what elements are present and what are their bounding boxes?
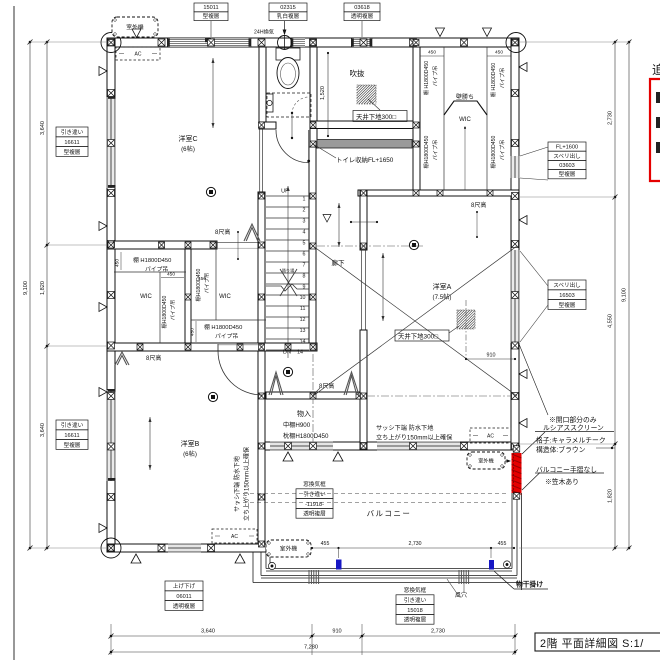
svg-text:7,280: 7,280 bbox=[304, 645, 318, 651]
svg-text:透明複層: 透明複層 bbox=[303, 510, 325, 518]
svg-text:透明複層: 透明複層 bbox=[351, 12, 373, 20]
svg-text:洋室B: 洋室B bbox=[181, 439, 200, 448]
svg-text:(6帖): (6帖) bbox=[181, 145, 195, 153]
svg-text:AC: AC bbox=[487, 434, 494, 440]
svg-text:引き違い: 引き違い bbox=[61, 421, 84, 429]
svg-text:立ち上がり150mm以上確保: 立ち上がり150mm以上確保 bbox=[376, 434, 453, 442]
svg-text:06011: 06011 bbox=[176, 594, 191, 600]
svg-text:450: 450 bbox=[495, 50, 503, 56]
svg-text:2,730: 2,730 bbox=[608, 111, 614, 125]
svg-text:パイプ吊: パイプ吊 bbox=[499, 68, 506, 89]
svg-text:スベリ出し: スベリ出し bbox=[553, 281, 581, 289]
svg-text:5: 5 bbox=[303, 240, 306, 246]
svg-text:3,640: 3,640 bbox=[40, 121, 46, 135]
svg-text:廊下: 廊下 bbox=[332, 258, 346, 267]
svg-text:8尺高: 8尺高 bbox=[471, 201, 486, 209]
svg-text:パイプ吊: パイプ吊 bbox=[204, 273, 211, 294]
svg-text:24H換気: 24H換気 bbox=[254, 28, 274, 36]
svg-text:型複層: 型複層 bbox=[559, 301, 576, 309]
svg-text:450: 450 bbox=[190, 328, 196, 336]
svg-text:中棚H900: 中棚H900 bbox=[283, 421, 311, 429]
svg-text:-11918-: -11918- bbox=[305, 502, 324, 508]
svg-text:(6帖): (6帖) bbox=[183, 450, 197, 458]
svg-text:(7.5帖): (7.5帖) bbox=[433, 293, 452, 301]
svg-text:16503: 16503 bbox=[559, 293, 575, 299]
svg-text:引き違い: 引き違い bbox=[61, 128, 84, 136]
svg-text:パイプ吊: パイプ吊 bbox=[215, 333, 238, 340]
svg-text:910: 910 bbox=[487, 353, 496, 359]
svg-text:15018: 15018 bbox=[407, 608, 423, 614]
svg-text:FL+1600: FL+1600 bbox=[556, 145, 578, 151]
svg-text:3,640: 3,640 bbox=[201, 629, 215, 635]
svg-text:棚H1800D450: 棚H1800D450 bbox=[194, 268, 202, 301]
svg-text:型複層: 型複層 bbox=[64, 148, 81, 156]
svg-text:型複層: 型複層 bbox=[559, 170, 576, 178]
svg-text:型複層: 型複層 bbox=[64, 441, 81, 449]
svg-text:パイプ吊: パイプ吊 bbox=[432, 140, 439, 161]
svg-text:透明複層: 透明複層 bbox=[404, 616, 426, 624]
svg-text:4,550: 4,550 bbox=[608, 314, 614, 328]
svg-text:棚H1800D450: 棚H1800D450 bbox=[160, 295, 168, 328]
svg-text:型複層: 型複層 bbox=[203, 12, 220, 20]
svg-text:8尺高: 8尺高 bbox=[215, 228, 230, 236]
svg-text:455: 455 bbox=[498, 541, 507, 547]
svg-text:透明複層: 透明複層 bbox=[173, 602, 195, 610]
svg-text:サッシ下端 防水下地: サッシ下端 防水下地 bbox=[233, 456, 241, 512]
svg-text:格子:キャラメルチーク: 格子:キャラメルチーク bbox=[536, 436, 606, 445]
svg-text:14: 14 bbox=[300, 339, 306, 345]
svg-text:7: 7 bbox=[303, 262, 306, 268]
svg-text:16611: 16611 bbox=[64, 140, 79, 146]
svg-text:パイプ吊: パイプ吊 bbox=[145, 266, 168, 273]
svg-text:450: 450 bbox=[167, 272, 175, 278]
svg-text:引き違い: 引き違い bbox=[404, 596, 427, 604]
svg-text:※開口部分のみ: ※開口部分のみ bbox=[549, 415, 597, 424]
svg-text:壁勝ち: 壁勝ち bbox=[456, 93, 474, 101]
svg-text:吹抜: 吹抜 bbox=[350, 68, 365, 78]
svg-text:踊り場: 踊り場 bbox=[282, 267, 295, 274]
svg-text:9,100: 9,100 bbox=[23, 281, 29, 295]
svg-text:サッシ下端 防水下地: サッシ下端 防水下地 bbox=[376, 424, 433, 432]
svg-text:パイプ吊: パイプ吊 bbox=[432, 66, 439, 87]
svg-text:棚H1800D450: 棚H1800D450 bbox=[489, 135, 497, 168]
svg-text:1,520: 1,520 bbox=[320, 86, 326, 100]
svg-text:WIC: WIC bbox=[459, 117, 471, 123]
svg-text:室外機: 室外機 bbox=[478, 457, 494, 465]
svg-text:物干掛け: 物干掛け bbox=[516, 580, 543, 589]
svg-text:455: 455 bbox=[321, 541, 330, 547]
svg-text:窓換気框: 窓換気框 bbox=[303, 480, 326, 488]
svg-text:風穴: 風穴 bbox=[455, 591, 467, 599]
svg-text:棚 H1800D450: 棚 H1800D450 bbox=[204, 323, 242, 331]
svg-text:棚 H1800D450: 棚 H1800D450 bbox=[422, 61, 430, 95]
svg-text:天井下地300□: 天井下地300□ bbox=[356, 112, 396, 121]
svg-text:3: 3 bbox=[303, 218, 306, 224]
svg-text:引き違い: 引き違い bbox=[303, 490, 326, 498]
svg-text:8: 8 bbox=[303, 273, 306, 279]
svg-text:14: 14 bbox=[297, 350, 303, 356]
svg-text:450: 450 bbox=[115, 259, 121, 267]
svg-text:8尺高: 8尺高 bbox=[146, 354, 161, 362]
svg-text:WIC: WIC bbox=[140, 294, 152, 300]
svg-text:03603: 03603 bbox=[559, 163, 575, 169]
svg-text:6: 6 bbox=[303, 251, 306, 257]
svg-text:構造体:ブラウン: 構造体:ブラウン bbox=[536, 445, 586, 454]
svg-text:9,100: 9,100 bbox=[622, 288, 628, 302]
svg-text:パイプ吊: パイプ吊 bbox=[499, 140, 506, 161]
svg-text:AC: AC bbox=[135, 52, 142, 58]
svg-text:洋室A: 洋室A bbox=[433, 282, 452, 291]
svg-text:450: 450 bbox=[428, 50, 436, 56]
svg-text:450: 450 bbox=[198, 276, 206, 282]
svg-text:WIC: WIC bbox=[219, 294, 231, 300]
svg-text:2: 2 bbox=[303, 207, 306, 213]
svg-text:バルコニー: バルコニー bbox=[367, 509, 412, 518]
svg-text:洋室C: 洋室C bbox=[178, 134, 197, 143]
svg-text:13: 13 bbox=[300, 328, 306, 334]
svg-text:スベリ出し: スベリ出し bbox=[553, 152, 581, 160]
svg-text:※笠木あり: ※笠木あり bbox=[545, 477, 579, 486]
svg-text:上げ下げ: 上げ下げ bbox=[173, 582, 196, 590]
svg-text:4: 4 bbox=[303, 229, 306, 235]
svg-text:ルシアススクリーン: ルシアススクリーン bbox=[543, 424, 604, 432]
svg-text:12: 12 bbox=[300, 317, 306, 323]
svg-text:乳白複層: 乳白複層 bbox=[277, 12, 299, 20]
svg-text:15011: 15011 bbox=[203, 5, 218, 11]
svg-text:棚H1800D450: 棚H1800D450 bbox=[422, 135, 430, 168]
svg-text:AC: AC bbox=[231, 534, 238, 540]
svg-text:03618: 03618 bbox=[354, 5, 370, 11]
svg-text:DN: DN bbox=[283, 350, 291, 356]
svg-text:天井下地300□: 天井下地300□ bbox=[398, 331, 438, 340]
svg-text:3,640: 3,640 bbox=[40, 423, 46, 437]
svg-text:立ち上がり150mm以上確保: 立ち上がり150mm以上確保 bbox=[243, 447, 251, 521]
svg-text:1,820: 1,820 bbox=[608, 489, 614, 503]
svg-text:棚 H1800D450: 棚 H1800D450 bbox=[133, 256, 171, 264]
svg-text:棚 H1800D450: 棚 H1800D450 bbox=[489, 63, 497, 97]
svg-text:パイプ吊: パイプ吊 bbox=[170, 300, 177, 321]
svg-text:2,730: 2,730 bbox=[409, 541, 422, 547]
svg-text:02315: 02315 bbox=[280, 5, 296, 11]
svg-text:10: 10 bbox=[300, 295, 306, 301]
svg-text:2階 平面詳細図 S:1/: 2階 平面詳細図 S:1/ bbox=[540, 636, 644, 650]
svg-text:室外機: 室外機 bbox=[280, 545, 298, 553]
svg-text:2,730: 2,730 bbox=[431, 629, 445, 635]
svg-text:1: 1 bbox=[303, 197, 306, 203]
svg-text:物入: 物入 bbox=[297, 409, 311, 418]
svg-text:910: 910 bbox=[332, 629, 341, 635]
svg-text:トイレ収納FL+1650: トイレ収納FL+1650 bbox=[336, 155, 394, 164]
svg-text:11: 11 bbox=[300, 306, 306, 312]
svg-text:追: 追 bbox=[652, 62, 660, 77]
svg-text:窓換気框: 窓換気框 bbox=[404, 586, 427, 594]
svg-text:枕棚H1800D450: 枕棚H1800D450 bbox=[283, 432, 329, 440]
svg-text:1,820: 1,820 bbox=[40, 281, 46, 295]
svg-text:16611: 16611 bbox=[64, 433, 79, 439]
